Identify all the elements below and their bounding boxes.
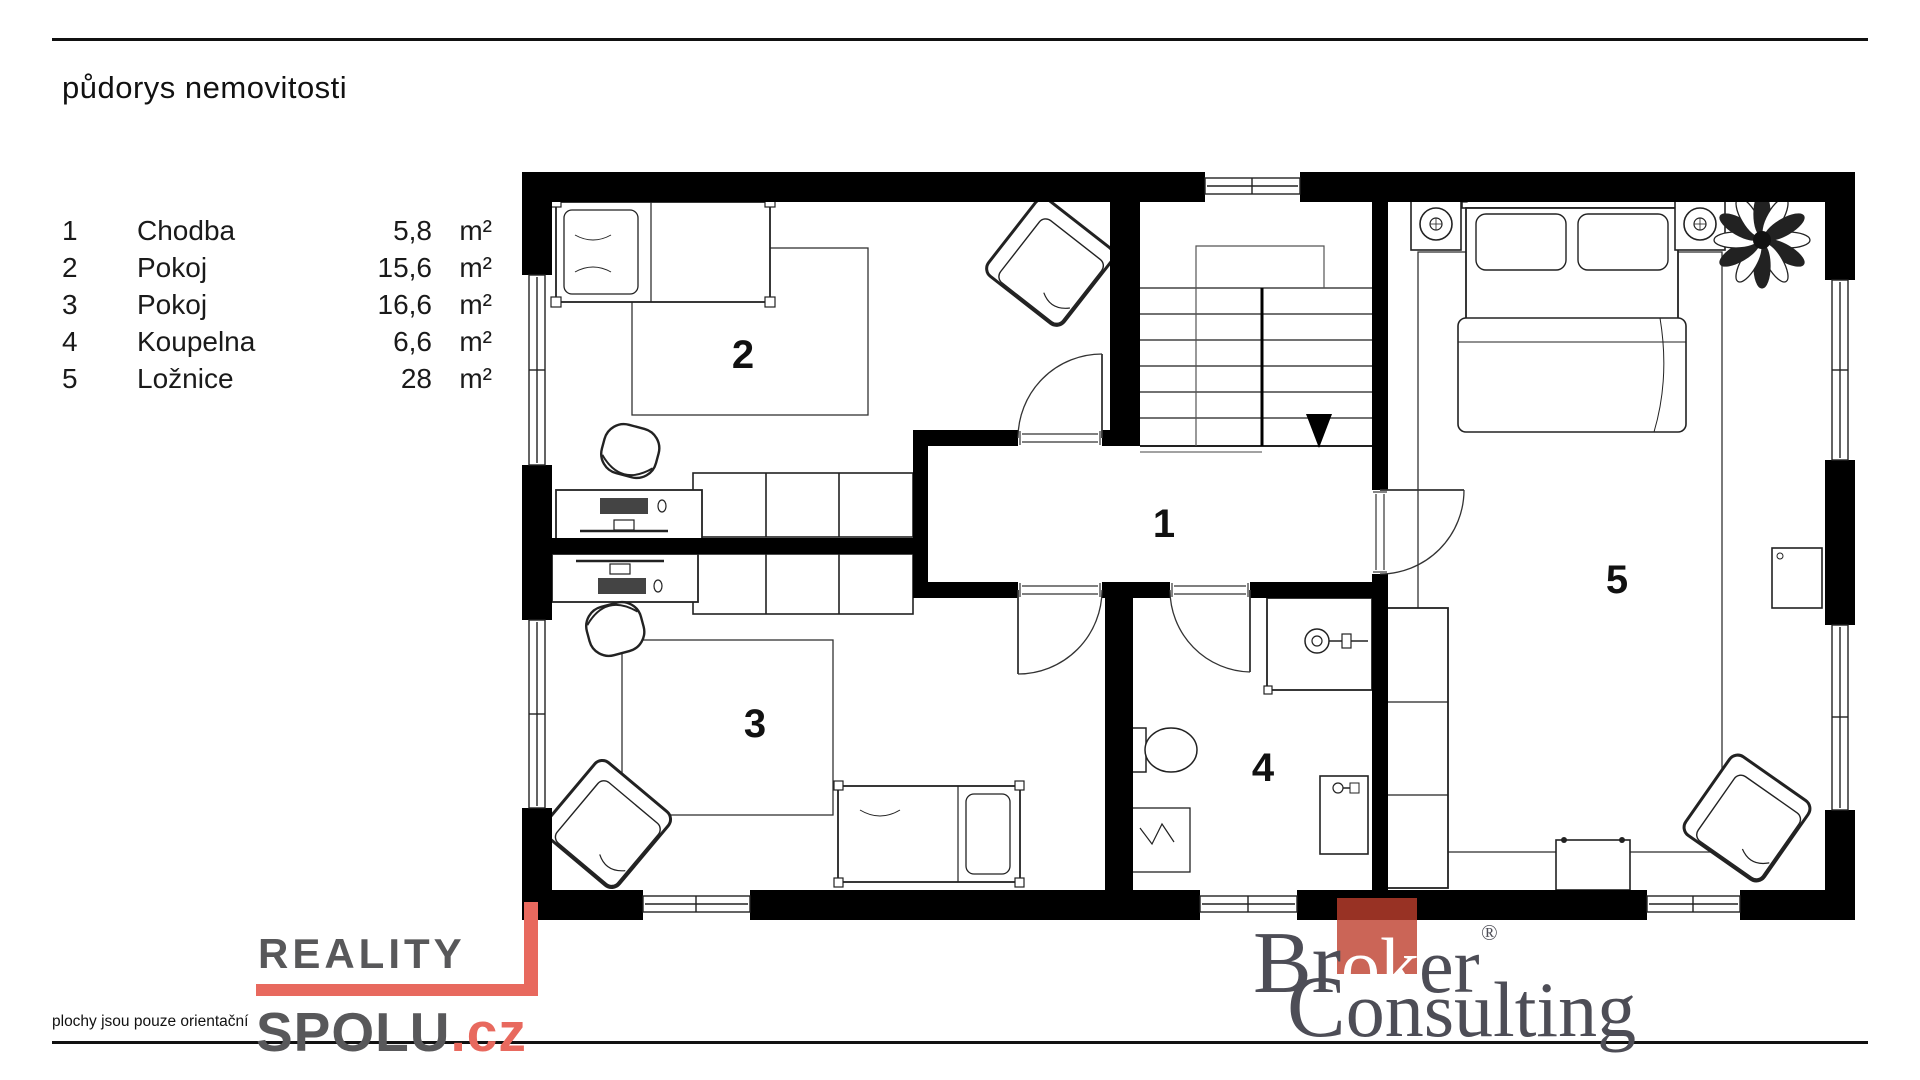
stairs-down-arrow xyxy=(1306,414,1332,448)
side-table-icon-room5 xyxy=(1556,837,1630,890)
page: půdorys nemovitosti 1 Chodba 5,8 m² 2 Po… xyxy=(0,0,1920,1080)
footnote: plochy jsou pouze orientační xyxy=(52,1013,248,1031)
registered-trademark-icon: ® xyxy=(1481,920,1498,946)
window-left-1 xyxy=(529,275,545,465)
double-bed-icon-room5 xyxy=(1457,192,1687,432)
reality-logo-word1: REALITY xyxy=(258,930,466,978)
bath-mat-icon xyxy=(1128,808,1190,872)
reality-logo-tld: .cz xyxy=(450,1001,526,1063)
armchair-icon-room2 xyxy=(983,195,1118,330)
room-label-4: 4 xyxy=(1252,746,1275,790)
door-room3 xyxy=(1018,583,1102,674)
broker-consulting-logo: Broker ® Consulting xyxy=(1253,892,1673,1072)
window-left-2 xyxy=(529,620,545,808)
broker-logo-onsulting: onsulting xyxy=(1346,966,1636,1053)
closet-room2 xyxy=(693,473,913,537)
window-bottom-1 xyxy=(643,896,750,912)
window-top xyxy=(1205,178,1300,194)
desk-icon-room5 xyxy=(1772,548,1822,608)
staircase xyxy=(1140,246,1372,452)
bed-icon-room3 xyxy=(834,781,1024,887)
closet-room3 xyxy=(693,554,913,614)
window-right-1 xyxy=(1832,280,1848,460)
plant-icon xyxy=(1714,192,1810,288)
door-room2 xyxy=(1018,354,1102,445)
room-label-3: 3 xyxy=(744,702,766,746)
room-label-2: 2 xyxy=(732,333,754,377)
wardrobe-icon-room5 xyxy=(1387,608,1448,888)
reality-logo-bracket-bar xyxy=(256,984,538,996)
reality-logo-bracket-post xyxy=(524,902,538,996)
desk-icon-room3 xyxy=(552,554,698,602)
reality-logo-spolu: SPOLU xyxy=(256,1001,450,1063)
window-right-2 xyxy=(1832,625,1848,810)
door-bathroom xyxy=(1170,583,1250,672)
broker-logo-line2: Consulting xyxy=(1287,964,1636,1052)
toilet-icon xyxy=(1128,728,1197,772)
shower-icon xyxy=(1264,598,1372,694)
reality-spolu-logo: REALITY SPOLU.cz xyxy=(256,900,556,1075)
office-chair-icon-room2 xyxy=(597,420,664,483)
sink-vanity-icon xyxy=(1320,776,1368,854)
broker-logo-c: C xyxy=(1287,959,1346,1056)
reality-logo-word2: SPOLU.cz xyxy=(256,1000,527,1064)
bed-icon-room2 xyxy=(551,197,775,307)
room-label-1: 1 xyxy=(1153,502,1175,546)
desk-icon-room2 xyxy=(556,490,702,540)
rug-room3 xyxy=(622,640,833,815)
nightstand-lamp-left xyxy=(1411,198,1461,250)
room-label-5: 5 xyxy=(1606,558,1628,602)
